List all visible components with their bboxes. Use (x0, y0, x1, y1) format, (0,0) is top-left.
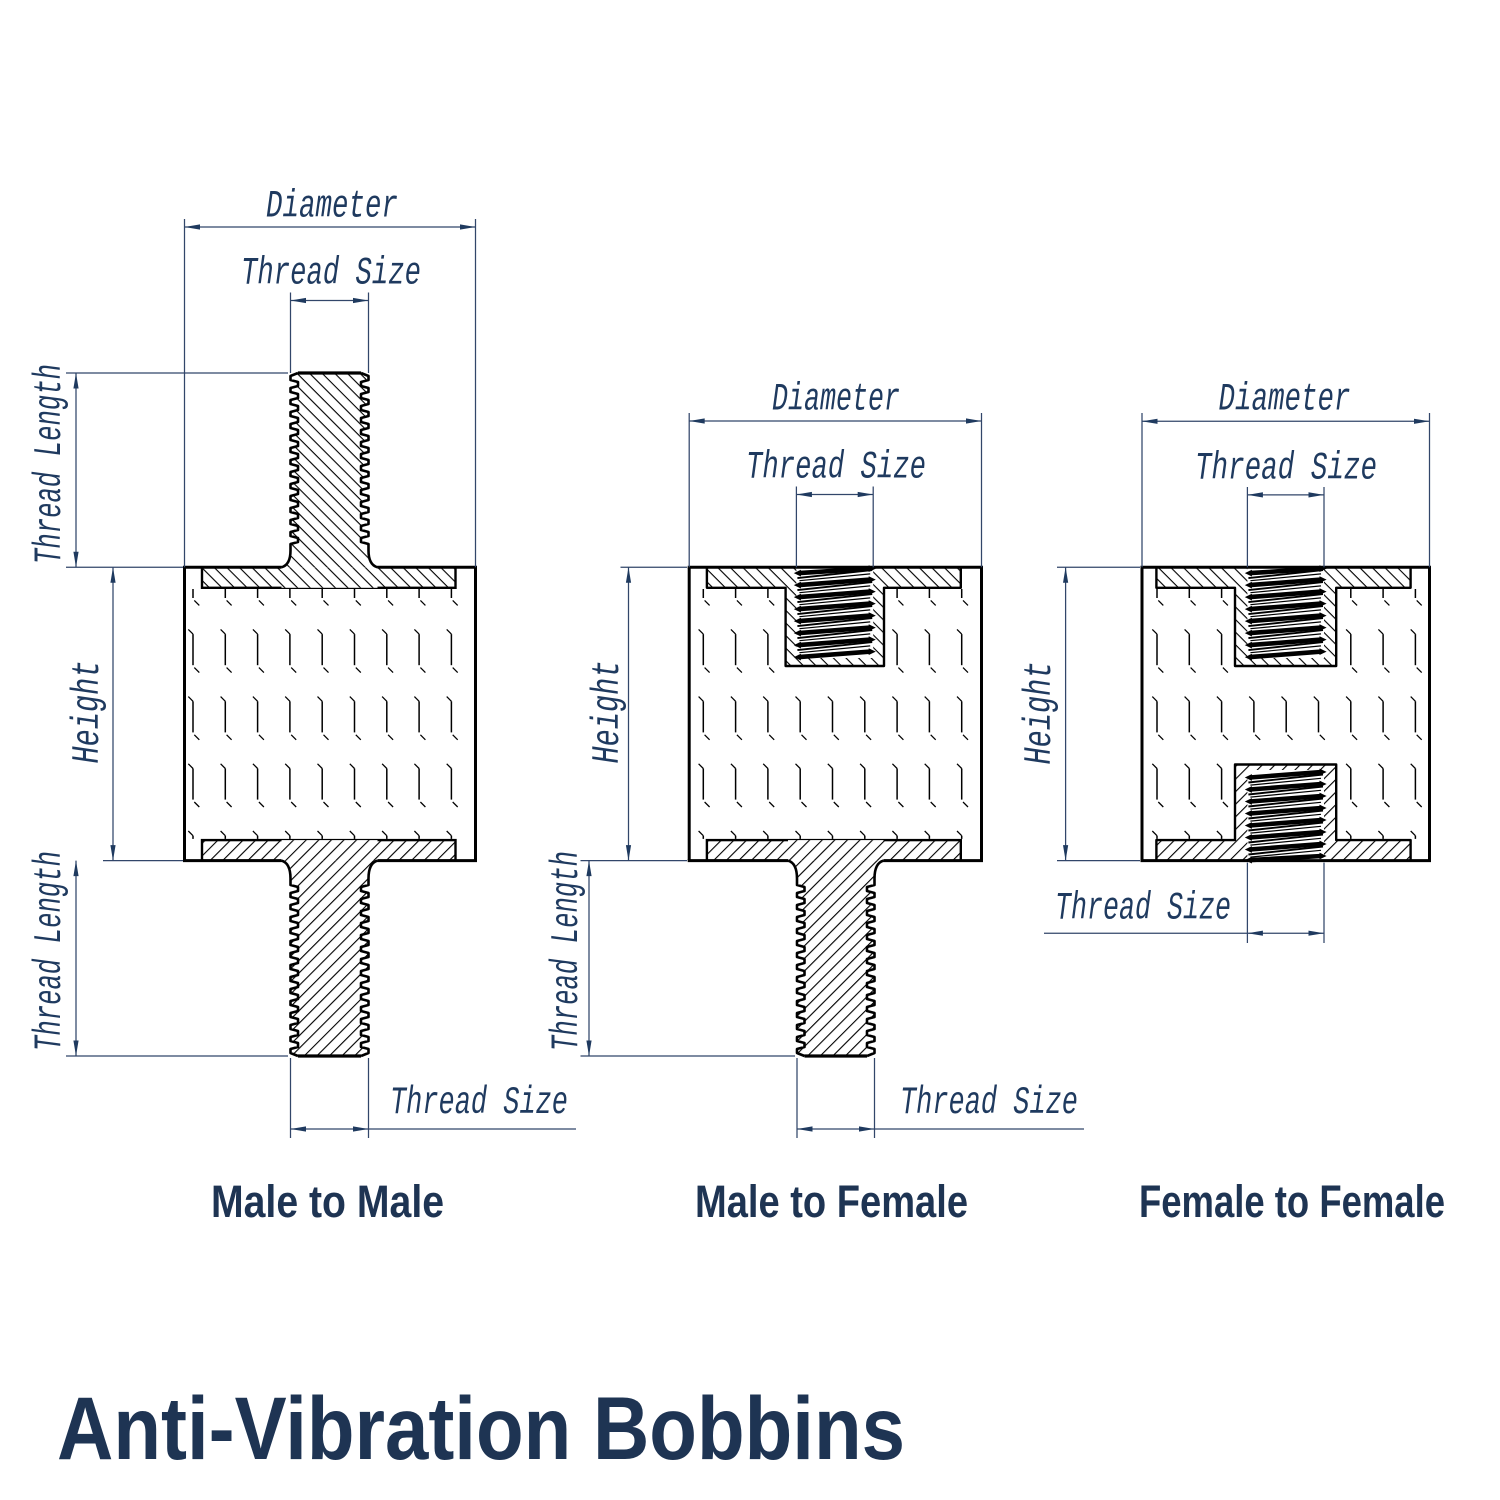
svg-text:Anti-Vibration Bobbins: Anti-Vibration Bobbins (57, 1378, 905, 1478)
svg-text:Thread Size: Thread Size (1055, 887, 1231, 931)
svg-text:Thread Size: Thread Size (390, 1081, 568, 1125)
svg-text:Height: Height (1018, 662, 1062, 765)
svg-text:Height: Height (586, 661, 630, 764)
svg-text:Female to Female: Female to Female (1139, 1176, 1445, 1227)
svg-text:Thread Size: Thread Size (1195, 447, 1377, 491)
svg-text:Male to Female: Male to Female (695, 1176, 968, 1227)
svg-text:Thread Length: Thread Length (28, 364, 72, 564)
svg-text:Male to Male: Male to Male (211, 1176, 444, 1227)
svg-text:Height: Height (66, 661, 110, 764)
svg-text:Diameter: Diameter (772, 378, 900, 422)
svg-text:Thread Size: Thread Size (746, 446, 926, 490)
svg-text:Thread Size: Thread Size (241, 252, 421, 296)
svg-text:Thread Size: Thread Size (900, 1081, 1078, 1125)
svg-text:Diameter: Diameter (1219, 378, 1351, 422)
svg-text:Thread Length: Thread Length (545, 851, 589, 1051)
svg-text:Diameter: Diameter (266, 185, 398, 229)
svg-text:Thread Length: Thread Length (28, 851, 72, 1051)
